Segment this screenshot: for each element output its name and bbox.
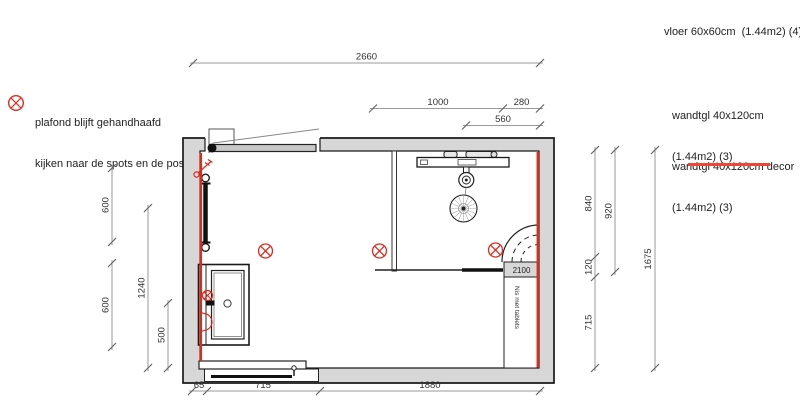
dim-560: 560	[495, 114, 511, 125]
walkin-arc	[502, 225, 539, 262]
walls	[183, 138, 554, 383]
door-hinge	[208, 144, 217, 153]
dim-600b: 600	[101, 297, 112, 313]
shower-set	[417, 152, 509, 223]
ceiling-spots	[259, 243, 503, 258]
dim-600a: 600	[101, 197, 112, 213]
spot-circled-x-icon	[373, 244, 387, 258]
dim-120: 120	[584, 259, 595, 275]
dim-1000: 1000	[427, 97, 448, 108]
dim-2660: 2660	[356, 52, 377, 63]
vanity	[199, 265, 250, 346]
dim-920: 920	[604, 203, 615, 219]
niche: 2100 Nis met tablets	[504, 262, 539, 368]
dim-1240: 1240	[137, 277, 148, 298]
dim-715r: 715	[584, 315, 595, 331]
dim-1880: 1880	[419, 380, 440, 391]
dim-65: 65	[194, 380, 205, 391]
niche-height-label: 2100	[513, 266, 531, 275]
dim-840: 840	[584, 196, 595, 212]
niche-label: Nis met tablets	[513, 286, 520, 330]
radiator-recess	[199, 361, 319, 382]
spot-circled-x-icon	[259, 244, 273, 258]
door	[208, 129, 320, 153]
floorplan-page: plafond blijft gehandhaafd kijken naar d…	[0, 0, 800, 412]
dim-280: 280	[514, 97, 530, 108]
spot-circled-x-icon	[489, 243, 503, 257]
faucet	[206, 301, 215, 306]
rain-shower-head	[450, 195, 477, 222]
door-leaf	[210, 145, 316, 152]
dim-500: 500	[157, 327, 168, 343]
shower-rail	[417, 158, 509, 168]
dim-1675: 1675	[643, 248, 654, 269]
dim-715b: 715	[255, 380, 271, 391]
decor-tile-lines	[201, 152, 538, 368]
shower-glass-partition	[392, 151, 397, 271]
floorplan-drawing: 2100 Nis met tablets	[0, 0, 800, 412]
